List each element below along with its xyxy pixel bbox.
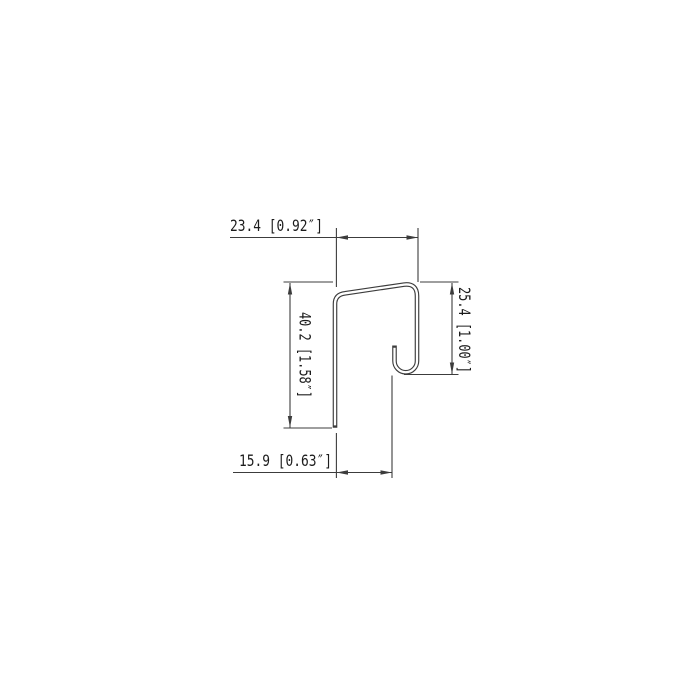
arrowhead-right [381,470,393,474]
profile-sheet-wall [335,284,417,427]
profile-sheet-core [335,284,417,425]
arrowhead-down [450,363,454,375]
profile-outline [335,284,417,427]
arrowhead-left [337,470,349,474]
arrowhead-up [450,283,454,295]
dimension-left-height: 40.2 [1.58″] [284,282,334,428]
dimension-right-height: 25.4 [1.00″] [404,282,474,375]
dimension-top-width: 23.4 [0.92″] [230,216,418,287]
arrowhead-left [337,235,349,239]
dimension-label-top-width: 23.4 [0.92″] [230,216,323,235]
arrowhead-down [288,416,292,428]
arrowhead-right [407,235,419,239]
dimension-label-bottom-width: 15.9 [0.63″] [239,451,332,470]
dimension-label-left-height: 40.2 [1.58″] [296,312,315,398]
arrowhead-up [288,283,292,295]
drawing-canvas: 23.4 [0.92″] 25.4 [1.00″] 40.2 [1.58″] [0,0,700,700]
dimension-label-right-height: 25.4 [1.00″] [455,287,474,373]
technical-drawing: 23.4 [0.92″] 25.4 [1.00″] 40.2 [1.58″] [0,0,700,700]
